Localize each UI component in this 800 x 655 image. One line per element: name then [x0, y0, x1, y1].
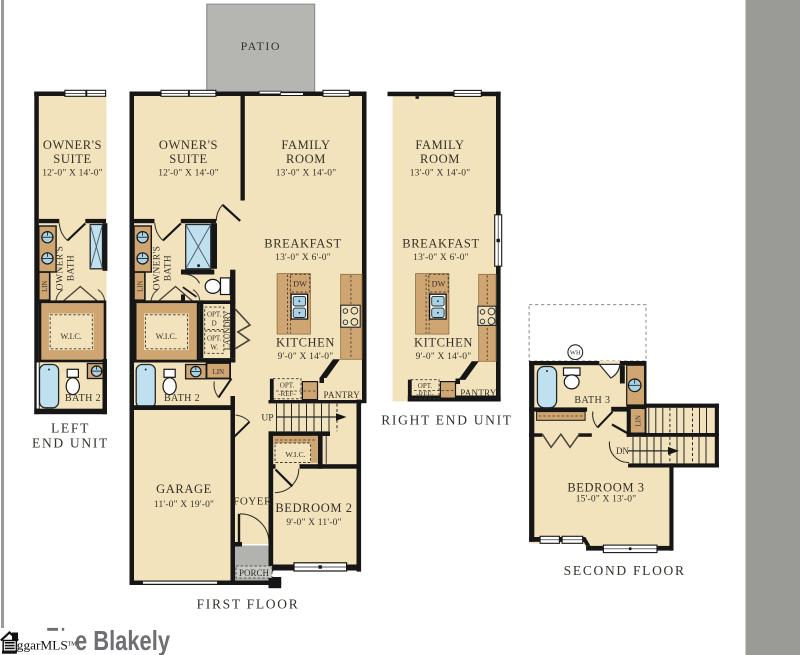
- svg-text:LIN: LIN: [212, 368, 224, 376]
- svg-text:BATH 3: BATH 3: [574, 395, 610, 406]
- svg-text:BATH 2: BATH 2: [164, 393, 200, 404]
- svg-text:DW: DW: [293, 280, 307, 289]
- svg-text:12'-0" X 14'-0": 12'-0" X 14'-0": [42, 169, 103, 179]
- svg-text:FIRST FLOOR: FIRST FLOOR: [197, 597, 300, 612]
- svg-text:W.I.C.: W.I.C.: [156, 332, 177, 341]
- svg-text:FOYER: FOYER: [233, 496, 272, 508]
- svg-text:13'-0" X 14'-0": 13'-0" X 14'-0": [276, 169, 337, 179]
- svg-text:D: D: [212, 320, 217, 328]
- svg-text:15'-0" X 13'-0": 15'-0" X 13'-0": [576, 495, 637, 505]
- svg-text:GARAGE: GARAGE: [156, 482, 212, 496]
- svg-text:W.: W.: [210, 343, 218, 351]
- svg-text:PATIO: PATIO: [241, 39, 281, 53]
- svg-text:BATH 2: BATH 2: [65, 393, 101, 404]
- svg-text:BEDROOM 3: BEDROOM 3: [567, 481, 644, 495]
- svg-text:TM: TM: [68, 642, 78, 648]
- svg-text:DW: DW: [432, 280, 446, 289]
- svg-text:13'-0" X 6'-0": 13'-0" X 6'-0": [413, 253, 469, 263]
- svg-text:9'-0" X 14'-0": 9'-0" X 14'-0": [416, 352, 472, 362]
- svg-text:BATH: BATH: [164, 255, 174, 281]
- svg-text:12'-0" X 14'-0": 12'-0" X 14'-0": [158, 169, 219, 179]
- svg-text:DN: DN: [616, 446, 629, 456]
- svg-text:PORCH: PORCH: [239, 568, 270, 578]
- svg-text:OWNER'S: OWNER'S: [153, 246, 163, 291]
- svg-text:OPT.: OPT.: [207, 334, 222, 342]
- svg-text:END UNIT: END UNIT: [32, 436, 109, 451]
- svg-text:SUITE: SUITE: [169, 152, 207, 166]
- svg-text:LIN: LIN: [636, 415, 643, 426]
- svg-text:PANTRY: PANTRY: [460, 388, 497, 398]
- svg-text:PANTRY: PANTRY: [324, 390, 361, 400]
- svg-text:KITCHEN: KITCHEN: [276, 336, 335, 350]
- svg-text:RIGHT END UNIT: RIGHT END UNIT: [381, 413, 513, 428]
- svg-text:LIN: LIN: [137, 280, 144, 291]
- svg-text:LIN: LIN: [42, 280, 49, 291]
- svg-text:W.I.C.: W.I.C.: [285, 450, 305, 459]
- svg-text:KITCHEN: KITCHEN: [414, 336, 473, 350]
- svg-text:OPT.: OPT.: [280, 381, 295, 389]
- svg-text:BREAKFAST: BREAKFAST: [402, 237, 479, 251]
- svg-text:e Blakely: e Blakely: [75, 625, 170, 655]
- svg-text:WH: WH: [570, 350, 581, 357]
- svg-text:OWNER'S: OWNER'S: [43, 138, 102, 152]
- svg-text:9'-0" X 14'-0": 9'-0" X 14'-0": [278, 352, 334, 362]
- svg-text:OPT.: OPT.: [418, 382, 433, 390]
- svg-text:11'-0" X 19'-0": 11'-0" X 19'-0": [154, 500, 214, 510]
- svg-text:FAMILY: FAMILY: [281, 138, 330, 152]
- svg-text:ROOM: ROOM: [286, 152, 326, 166]
- svg-text:ggarMLS: ggarMLS: [17, 638, 68, 652]
- svg-text:LAUNDRY: LAUNDRY: [223, 311, 232, 351]
- svg-text:SECOND FLOOR: SECOND FLOOR: [564, 563, 686, 578]
- svg-text:SUITE: SUITE: [53, 152, 91, 166]
- svg-text:UP: UP: [261, 414, 273, 424]
- svg-text:13'-0" X 6'-0": 13'-0" X 6'-0": [275, 253, 331, 263]
- svg-text:OWNER'S: OWNER'S: [159, 138, 218, 152]
- svg-text:LEFT: LEFT: [51, 421, 90, 436]
- svg-text:BREAKFAST: BREAKFAST: [264, 237, 341, 251]
- svg-text:FAMILY: FAMILY: [415, 138, 464, 152]
- svg-text:OWNER'S: OWNER'S: [56, 246, 66, 291]
- svg-text:BEDROOM 2: BEDROOM 2: [275, 501, 352, 515]
- svg-text:-REF-: -REF-: [416, 391, 434, 399]
- svg-text:9'-0" X 11'-0": 9'-0" X 11'-0": [286, 518, 341, 528]
- svg-text:W.I.C.: W.I.C.: [61, 332, 82, 341]
- svg-text:BATH: BATH: [67, 255, 77, 281]
- svg-text:13'-0" X 14'-0": 13'-0" X 14'-0": [410, 169, 471, 179]
- svg-text:OPT.: OPT.: [207, 311, 222, 319]
- svg-text:ROOM: ROOM: [420, 152, 460, 166]
